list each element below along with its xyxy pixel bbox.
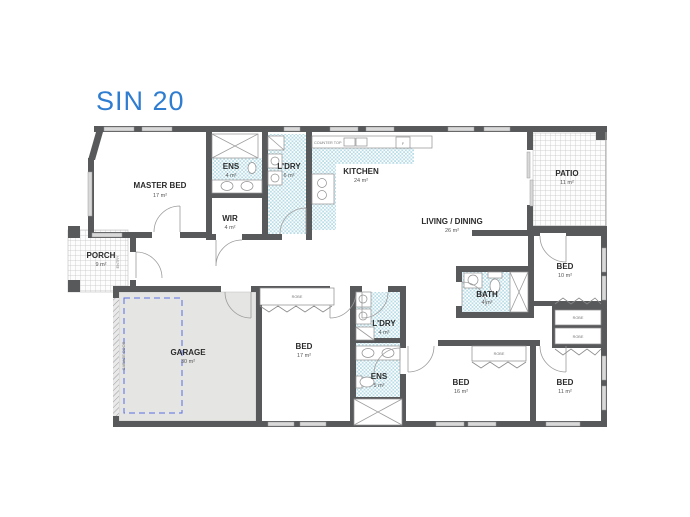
plan-title: SIN 20 xyxy=(96,86,185,117)
label-patio: PATIO xyxy=(555,169,578,178)
area-ens-bottom: 5 m² xyxy=(374,383,385,389)
robes xyxy=(260,288,601,368)
counter-top-label: COUNTER TOP xyxy=(314,141,342,145)
label-wir: WIR xyxy=(222,214,238,223)
label-garage: GARAGE xyxy=(170,348,206,357)
area-ens-top: 4 m² xyxy=(226,173,237,179)
label-master-bed: MASTER BED xyxy=(134,181,187,190)
area-bed11: 11 m² xyxy=(558,389,572,395)
label-porch: PORCH xyxy=(87,251,116,260)
garage-door-label: GARAGE DOOR xyxy=(122,341,126,370)
area-garage: 30 m² xyxy=(181,359,195,365)
label-kitchen: KITCHEN xyxy=(343,167,379,176)
floor-plan-drawing: MASTER BED 17 m² ENS 4 m² L'DRY 6 m² WIR… xyxy=(0,0,690,517)
floor-plan-page: SIN 20 xyxy=(0,0,690,517)
area-wir: 4 m² xyxy=(225,225,236,231)
robe-label-hall-2: ROBE xyxy=(573,335,584,339)
label-bed16: BED xyxy=(453,378,470,387)
label-living: LIVING / DINING xyxy=(421,217,482,226)
garage-door-panel xyxy=(113,298,119,416)
area-living: 26 m² xyxy=(445,228,459,234)
entry-label: ENTRY xyxy=(116,255,120,268)
area-ldry-bottom: 4 m² xyxy=(379,330,390,336)
area-porch: 9 m² xyxy=(96,262,107,268)
robe-label-hall-1: ROBE xyxy=(573,316,584,320)
label-bed11: BED xyxy=(557,378,574,387)
area-bed16: 16 m² xyxy=(454,389,468,395)
area-ldry-top: 6 m² xyxy=(284,173,295,179)
area-master-bed: 17 m² xyxy=(153,193,167,199)
label-bath: BATH xyxy=(476,290,498,299)
area-kitchen: 24 m² xyxy=(354,178,368,184)
robe-label-bed16: ROBE xyxy=(494,352,505,356)
area-patio: 11 m² xyxy=(560,180,574,186)
label-ldry-bottom: L'DRY xyxy=(372,319,396,328)
area-bath: 4 m² xyxy=(482,300,493,306)
robe-label-bed17: ROBE xyxy=(292,295,303,299)
area-bed10: 10 m² xyxy=(558,273,572,279)
label-bed10: BED xyxy=(557,262,574,271)
label-ens-top: ENS xyxy=(223,162,240,171)
label-ldry-top: L'DRY xyxy=(277,162,301,171)
label-ens-bottom: ENS xyxy=(371,372,388,381)
label-bed17: BED xyxy=(296,342,313,351)
area-bed17: 17 m² xyxy=(297,353,311,359)
